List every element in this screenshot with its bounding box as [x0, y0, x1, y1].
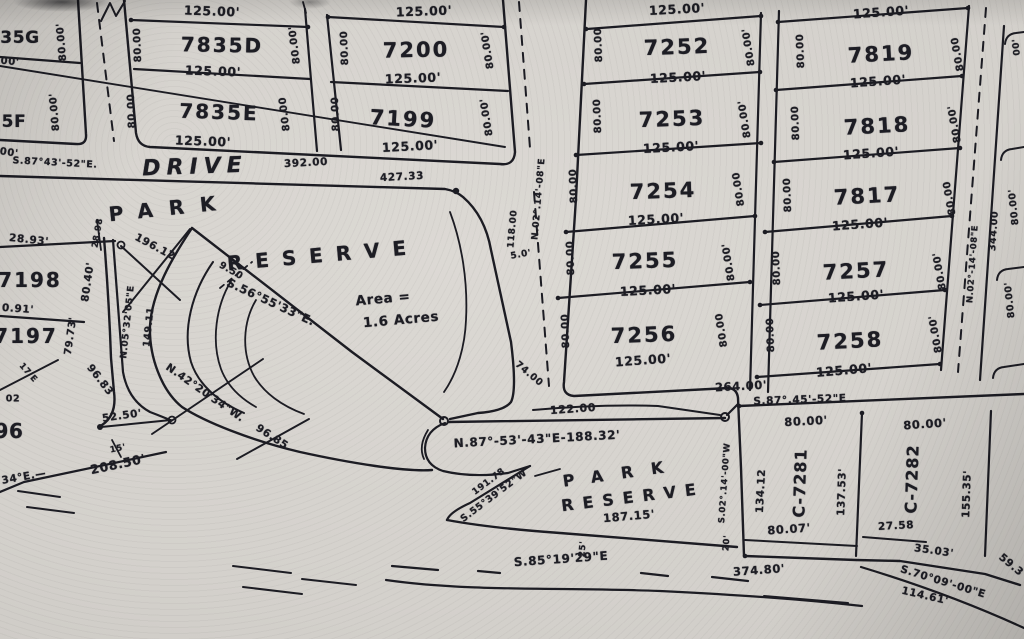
dimension-label: 80.00	[126, 93, 138, 128]
dimension-label: 80.00	[565, 240, 577, 275]
dimension-label: 264.00'	[715, 378, 768, 395]
dimension-label: 34°E.—	[1, 467, 48, 487]
dimension-label: 15'	[109, 442, 127, 455]
dimension-label: 80.00	[330, 96, 342, 131]
dimension-label: 80.00'	[480, 30, 497, 70]
dimension-label: 5.0'	[510, 248, 533, 262]
dimension-label: 80.40'	[79, 261, 96, 302]
dimension-label: 125.00'	[643, 138, 700, 156]
park-reserve-west-label: PARK	[107, 190, 232, 227]
dimension-label: 20'	[721, 535, 732, 552]
dimension-label: 118.00	[506, 209, 519, 248]
dimension-label: 125.00'	[175, 133, 232, 150]
bearing-label: N.05°32'05"E	[119, 285, 137, 359]
dimension-label: 80.00	[731, 171, 747, 207]
dimension-label: 80.00	[593, 27, 605, 62]
dimension-label: 125.00'	[842, 144, 899, 163]
dimension-label: 80.00'	[741, 27, 758, 67]
dimension-label: 28.98	[90, 217, 105, 248]
area-label: Area =	[355, 289, 411, 310]
lot-number-7258: 7258	[816, 327, 884, 354]
dimension-label: 374.80'	[733, 561, 786, 579]
dimension-label: 80.00'	[903, 415, 947, 432]
dimension-label: 80.00	[592, 98, 604, 133]
dimension-label: 80.00	[790, 105, 802, 140]
lot-number-7200: 7200	[383, 37, 450, 62]
dimension-label: 149.11	[141, 306, 156, 347]
lot-number-7252: 7252	[643, 34, 710, 60]
dimension-label: 80.00'	[55, 22, 69, 61]
dimension-label: 80.00'	[931, 251, 948, 291]
dimension-label: 02	[6, 394, 20, 405]
bearing-label: S.02°.14'-00"W	[717, 442, 733, 523]
lot-number-96: 96	[0, 419, 24, 443]
dimension-label: 125.00'	[815, 360, 872, 380]
lot-number-5f: 5F	[2, 112, 27, 132]
bearing-label: N.87°-53'-43"E-188.32'	[453, 428, 620, 451]
dimension-label: 125.00'	[852, 3, 909, 22]
lot-number-7198: 7198	[0, 268, 62, 292]
lot-number-7818: 7818	[843, 112, 911, 139]
lot-number-7254: 7254	[629, 178, 696, 204]
dimension-label: 80.07'	[767, 520, 811, 537]
dimension-label: 125.00'	[849, 72, 906, 91]
dimension-label: 427.33	[380, 170, 425, 184]
bearing-label: S.56°55'33"E.	[225, 275, 318, 328]
dimension-label: 80.00'	[1003, 281, 1018, 319]
dimension-label: 80.00	[771, 250, 783, 285]
dimension-label: 80.00	[339, 30, 351, 65]
dimension-label: 80.00	[714, 312, 730, 348]
dimension-label: 27.58	[878, 519, 915, 533]
dimension-label: 80.00'	[48, 92, 62, 131]
dimension-label: 35.03'	[913, 542, 954, 559]
dimension-label: 80.00'	[737, 99, 754, 139]
dimension-label: 125.00'	[184, 3, 241, 20]
dimension-label: 125.00'	[385, 70, 442, 87]
bearing-label: N.42°20'34"W.	[163, 361, 246, 424]
lot-number-7819: 7819	[847, 40, 915, 67]
dimension-label: 392.00	[284, 156, 329, 170]
dimension-label: 52.50'	[101, 407, 142, 424]
dimension-label: 80.00'	[479, 97, 496, 137]
dimension-label: 17'E	[17, 361, 40, 385]
dimension-label: 125.00'	[620, 281, 677, 299]
park-reserve-west-label: RESERVE	[226, 235, 420, 276]
lot-number-7835e: 7835E	[179, 99, 259, 126]
dimension-label: 80.00	[942, 180, 959, 216]
dimension-label: 0.91'	[2, 302, 35, 316]
dimension-label: 137.53'	[835, 468, 849, 516]
dimension-label: 80.00	[950, 36, 967, 72]
dimension-label: 208.50'	[89, 451, 147, 477]
dimension-label: 125.00'	[650, 68, 707, 86]
dimension-label: 96.83	[84, 362, 116, 398]
dimension-label: 125.00'	[831, 215, 888, 234]
lot-number-7253: 7253	[638, 106, 705, 132]
dimension-label: 79.73'	[63, 316, 79, 355]
dimension-label: 344.00	[987, 211, 1001, 252]
dimension-label: 125.00'	[185, 63, 242, 80]
dimension-label: 80.00	[277, 96, 292, 132]
dimension-label: 80.00	[560, 313, 572, 348]
dimension-label: 196.12	[133, 231, 178, 262]
lot-number-7199: 7199	[369, 105, 437, 132]
dimension-label: 125.00'	[382, 137, 439, 155]
street-name-drive: DRIVE	[142, 153, 248, 182]
dimension-label: 80.00'	[927, 314, 944, 354]
dimension-label: 80.00	[795, 33, 807, 68]
dimension-label: 134.12	[754, 469, 768, 514]
dimension-label: 80.00'	[946, 104, 963, 144]
lot-number-7817: 7817	[833, 182, 901, 209]
bearing-label: S.87°.45'-52"E	[753, 392, 847, 407]
lot-number-7835d: 7835D	[181, 32, 264, 57]
dimension-label: 74.00	[513, 359, 545, 389]
dimension-label: 80.00'	[721, 242, 738, 282]
dimension-label: 125.00'	[628, 210, 685, 228]
map-labels-layer: 35G00'80.00'5F00'80.00'125.00'7835D80.00…	[0, 0, 1024, 639]
dimension-label: 00'	[0, 56, 20, 69]
lot-number-7257: 7257	[822, 257, 890, 284]
dimension-label: 80.00	[765, 317, 777, 352]
dimension-label: 80.00'	[1007, 188, 1022, 226]
lot-number-c7281: C-7281	[789, 448, 810, 518]
dimension-label: 00'	[1011, 38, 1023, 56]
dimension-label: 125.00'	[396, 3, 453, 20]
dimension-label: 155.35'	[960, 470, 974, 518]
area-label: 1.6 Acres	[362, 309, 439, 332]
dimension-label: 80.00	[132, 27, 144, 62]
dimension-label: 96.85	[254, 422, 291, 452]
dimension-label: 59.3	[996, 551, 1024, 578]
dimension-label: 125.00'	[649, 0, 706, 18]
dimension-label: 80.00	[782, 177, 794, 212]
dimension-label: 125.00'	[827, 287, 884, 306]
dimension-label: 122.00	[550, 401, 597, 417]
lot-number-7197: 7197	[0, 324, 58, 348]
lot-number-c7282: C-7282	[901, 444, 922, 514]
dimension-label: 80.00'	[784, 413, 828, 429]
bearing-label: S.87°43'-52"E.	[12, 155, 98, 170]
lot-number-35g: 35G	[0, 28, 39, 48]
lot-number-7255: 7255	[611, 248, 678, 274]
plat-map-photo: 35G00'80.00'5F00'80.00'125.00'7835D80.00…	[0, 0, 1024, 639]
dimension-label: 28.93'	[8, 232, 49, 248]
bearing-label: N.02°-14'-08"E	[965, 225, 980, 304]
dimension-label: 187.15'	[602, 507, 655, 525]
dimension-label: 80.00'	[287, 25, 303, 64]
dimension-label: 125.00'	[614, 351, 671, 370]
dimension-label: 80.00	[568, 168, 580, 203]
bearing-label: S.85°19'29"E	[513, 549, 608, 570]
bearing-label: N.02°.14'-08"E	[530, 158, 547, 241]
lot-number-7256: 7256	[610, 322, 677, 348]
